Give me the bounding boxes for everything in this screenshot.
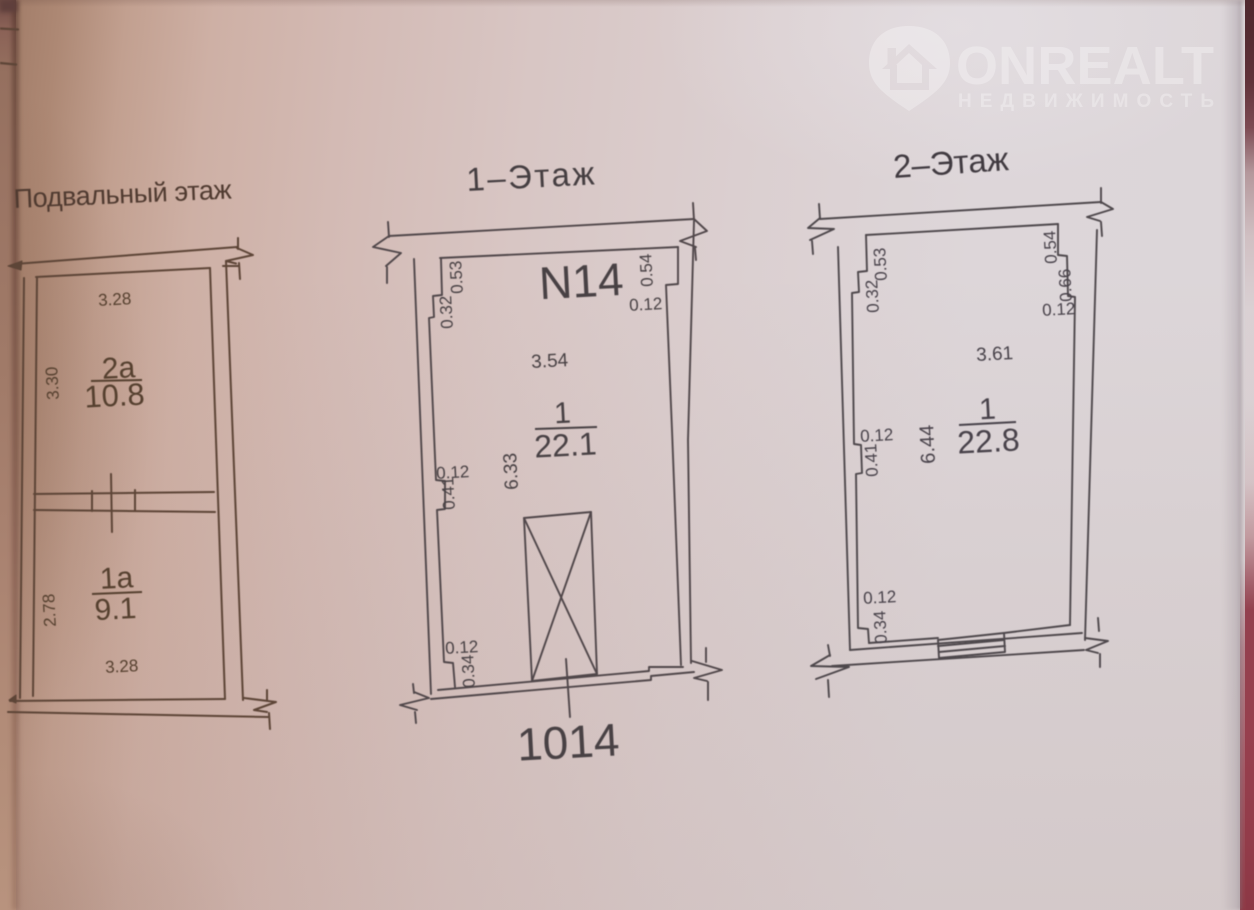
svg-text:0.41: 0.41	[861, 443, 882, 477]
svg-text:3.30: 3.30	[42, 366, 63, 400]
svg-text:3.54: 3.54	[531, 350, 569, 373]
svg-text:0.32: 0.32	[862, 279, 883, 313]
svg-text:0.34: 0.34	[458, 654, 479, 688]
svg-text:0.54: 0.54	[1040, 230, 1061, 264]
svg-text:1: 1	[978, 393, 996, 427]
svg-text:0.53: 0.53	[446, 260, 467, 294]
svg-text:2.78: 2.78	[39, 593, 60, 627]
svg-text:N14: N14	[538, 253, 625, 309]
svg-text:0.41: 0.41	[438, 476, 459, 510]
svg-text:0.34: 0.34	[870, 610, 891, 644]
svg-text:0.12: 0.12	[1042, 299, 1076, 320]
svg-text:1а: 1а	[99, 561, 134, 596]
svg-text:1–Этаж: 1–Этаж	[465, 154, 597, 198]
svg-text:3.61: 3.61	[976, 343, 1014, 366]
svg-text:10.8: 10.8	[83, 376, 145, 414]
svg-text:1: 1	[553, 397, 571, 431]
svg-text:0.32: 0.32	[436, 295, 457, 329]
svg-text:9.1: 9.1	[94, 592, 137, 627]
svg-text:0.53: 0.53	[870, 247, 891, 281]
svg-text:2–Этаж: 2–Этаж	[892, 140, 1010, 185]
svg-text:0.54: 0.54	[636, 253, 657, 287]
svg-text:22.1: 22.1	[533, 425, 597, 464]
svg-text:0.66: 0.66	[1055, 268, 1076, 302]
svg-text:1014: 1014	[516, 713, 621, 770]
svg-text:0.12: 0.12	[860, 425, 894, 446]
svg-text:0.12: 0.12	[863, 587, 897, 608]
svg-text:6.44: 6.44	[916, 424, 940, 464]
svg-text:3.28: 3.28	[105, 656, 139, 677]
svg-text:Подвальный этаж: Подвальный этаж	[13, 175, 232, 214]
svg-text:3.28: 3.28	[98, 289, 132, 310]
svg-text:0.12: 0.12	[629, 294, 663, 315]
svg-text:22.8: 22.8	[956, 421, 1020, 460]
svg-text:6.33: 6.33	[500, 452, 523, 490]
